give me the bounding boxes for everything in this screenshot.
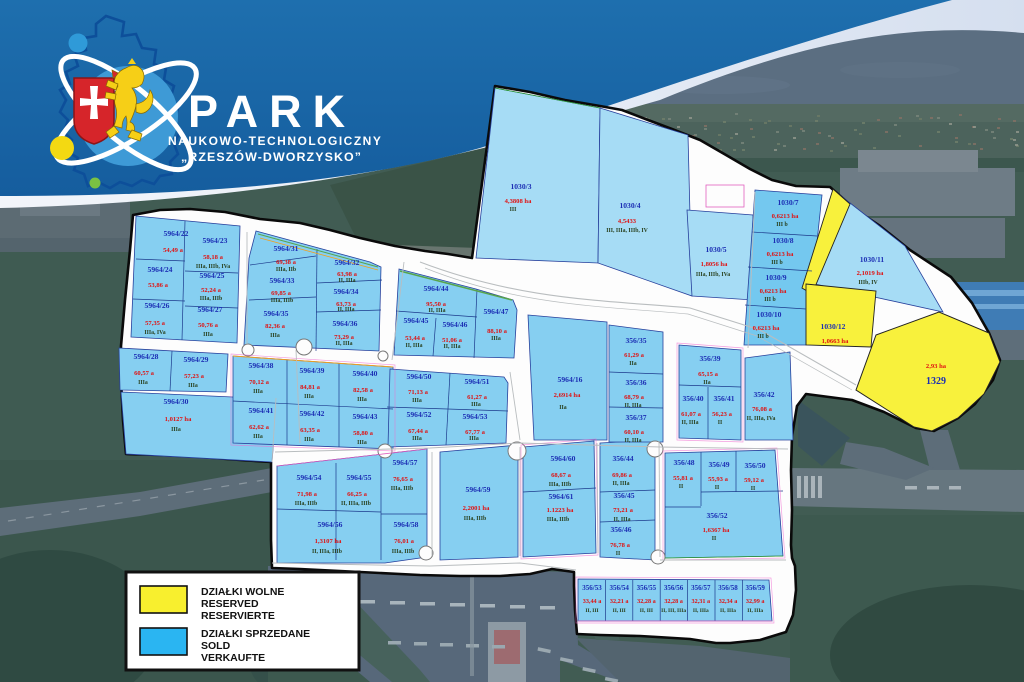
svg-text:5964/53: 5964/53 bbox=[463, 412, 488, 421]
svg-text:67,44 a: 67,44 a bbox=[408, 428, 428, 435]
svg-text:5964/46: 5964/46 bbox=[443, 320, 468, 329]
svg-text:5964/56: 5964/56 bbox=[318, 520, 343, 529]
svg-text:II: II bbox=[712, 536, 717, 542]
svg-text:95,50 a: 95,50 a bbox=[426, 301, 446, 308]
svg-text:II, IIIa: II, IIIa bbox=[338, 278, 355, 284]
svg-text:70,12 a: 70,12 a bbox=[249, 379, 269, 386]
svg-text:5964/22: 5964/22 bbox=[164, 229, 189, 238]
svg-text:5964/38: 5964/38 bbox=[249, 361, 274, 370]
svg-text:IIIa, IIIb: IIIa, IIIb bbox=[391, 486, 414, 492]
svg-text:356/48: 356/48 bbox=[673, 458, 694, 467]
svg-text:II, IIIa: II, IIIa bbox=[747, 608, 763, 614]
svg-text:32,28 a: 32,28 a bbox=[664, 598, 683, 605]
svg-text:1030/8: 1030/8 bbox=[772, 236, 793, 245]
svg-text:69,38 a: 69,38 a bbox=[276, 259, 296, 266]
svg-text:5964/61: 5964/61 bbox=[549, 492, 574, 501]
svg-text:IIIa: IIIa bbox=[471, 402, 481, 408]
svg-text:5964/41: 5964/41 bbox=[249, 406, 274, 415]
svg-text:IIIa: IIIa bbox=[491, 336, 501, 342]
svg-text:2,6914 ha: 2,6914 ha bbox=[554, 392, 581, 399]
svg-text:5964/52: 5964/52 bbox=[407, 410, 432, 419]
svg-text:1030/12: 1030/12 bbox=[821, 322, 846, 331]
svg-text:73,21 a: 73,21 a bbox=[613, 507, 633, 514]
svg-text:II: II bbox=[715, 485, 720, 491]
svg-text:5964/23: 5964/23 bbox=[203, 236, 228, 245]
svg-text:IIIa, IIIb, IVa: IIIa, IIIb, IVa bbox=[196, 264, 230, 270]
svg-text:1030/5: 1030/5 bbox=[705, 245, 726, 254]
svg-text:DZIAŁKI SPRZEDANE: DZIAŁKI SPRZEDANE bbox=[201, 628, 310, 640]
svg-text:IIIa, IIIb: IIIa, IIIb bbox=[549, 482, 572, 488]
svg-text:IIIa, IIIb: IIIa, IIIb bbox=[547, 517, 570, 523]
svg-text:IIIa, IIIb: IIIa, IIIb bbox=[295, 501, 318, 507]
svg-text:III, IIIa, IIIb, IV: III, IIIa, IIIb, IV bbox=[606, 228, 648, 234]
svg-text:61,07 a: 61,07 a bbox=[681, 411, 701, 418]
svg-text:71,13 a: 71,13 a bbox=[408, 389, 428, 396]
svg-text:IIa: IIa bbox=[629, 361, 637, 367]
svg-text:5964/54: 5964/54 bbox=[297, 473, 322, 482]
svg-text:356/37: 356/37 bbox=[625, 413, 646, 422]
svg-text:5964/47: 5964/47 bbox=[484, 307, 509, 316]
svg-text:III b: III b bbox=[757, 334, 768, 340]
svg-text:IIIa: IIIa bbox=[138, 380, 148, 386]
svg-text:II, IIIa: II, IIIa bbox=[335, 341, 352, 347]
svg-text:IIIa: IIIa bbox=[171, 427, 181, 433]
svg-text:„RZESZÓW-DWORZYSKO”: „RZESZÓW-DWORZYSKO” bbox=[181, 149, 362, 164]
svg-text:II: II bbox=[718, 420, 723, 426]
svg-text:58,80 a: 58,80 a bbox=[353, 430, 373, 437]
svg-text:356/59: 356/59 bbox=[745, 584, 765, 592]
svg-text:5964/55: 5964/55 bbox=[347, 473, 372, 482]
svg-text:5964/27: 5964/27 bbox=[198, 305, 223, 314]
svg-text:IIIa: IIIa bbox=[357, 440, 367, 446]
svg-text:0,6213 ha: 0,6213 ha bbox=[772, 213, 799, 220]
svg-text:II, IIIa: II, IIIa bbox=[613, 517, 630, 523]
svg-text:1,8056 ha: 1,8056 ha bbox=[701, 261, 728, 268]
svg-text:54,49 a: 54,49 a bbox=[163, 247, 183, 254]
svg-text:356/35: 356/35 bbox=[625, 336, 646, 345]
svg-text:PARK: PARK bbox=[188, 86, 356, 137]
svg-text:61,29 a: 61,29 a bbox=[624, 352, 644, 359]
svg-text:53,86 a: 53,86 a bbox=[148, 282, 168, 289]
svg-text:IIIa, IIIb, IVa: IIIa, IIIb, IVa bbox=[696, 272, 730, 278]
svg-text:II, IIIa: II, IIIa bbox=[693, 608, 709, 614]
svg-text:IIIa: IIIa bbox=[412, 398, 422, 404]
svg-text:IIIa: IIIa bbox=[412, 436, 422, 442]
svg-text:4,5433: 4,5433 bbox=[618, 218, 637, 225]
svg-text:5964/60: 5964/60 bbox=[551, 454, 576, 463]
svg-text:2,93 ha: 2,93 ha bbox=[926, 363, 947, 370]
svg-text:5964/35: 5964/35 bbox=[264, 309, 289, 318]
svg-text:IIIa, IVa: IIIa, IVa bbox=[144, 330, 165, 336]
svg-text:IIIa: IIIa bbox=[304, 394, 314, 400]
svg-text:DZIAŁKI WOLNE: DZIAŁKI WOLNE bbox=[201, 586, 284, 598]
svg-text:II: II bbox=[616, 551, 621, 557]
svg-text:60,57 a: 60,57 a bbox=[134, 370, 154, 377]
svg-text:1.1223 ha: 1.1223 ha bbox=[547, 507, 574, 514]
svg-text:84,81 a: 84,81 a bbox=[300, 384, 320, 391]
svg-text:5964/42: 5964/42 bbox=[300, 409, 325, 418]
svg-text:5964/57: 5964/57 bbox=[393, 458, 418, 467]
svg-text:76,01 a: 76,01 a bbox=[394, 538, 414, 545]
svg-text:IIIa, IIb: IIIa, IIb bbox=[276, 267, 296, 273]
svg-text:1030/3: 1030/3 bbox=[510, 182, 531, 191]
svg-text:II: II bbox=[751, 486, 756, 492]
svg-text:NAUKOWO-TECHNOLOGICZNY: NAUKOWO-TECHNOLOGICZNY bbox=[168, 134, 382, 148]
svg-text:IIIb, IV: IIIb, IV bbox=[858, 280, 878, 286]
svg-text:5964/45: 5964/45 bbox=[404, 316, 429, 325]
svg-text:1030/10: 1030/10 bbox=[757, 310, 782, 319]
svg-text:II, IIIa: II, IIIa bbox=[624, 403, 641, 409]
svg-text:61,27 a: 61,27 a bbox=[467, 394, 487, 401]
svg-text:IIIa: IIIa bbox=[469, 436, 479, 442]
svg-text:5964/16: 5964/16 bbox=[558, 375, 583, 384]
svg-text:II, IIIa: II, IIIa bbox=[337, 307, 354, 313]
svg-text:1030/9: 1030/9 bbox=[765, 273, 786, 282]
svg-text:5964/58: 5964/58 bbox=[394, 520, 419, 529]
svg-text:5964/59: 5964/59 bbox=[466, 485, 491, 494]
svg-text:50,76 a: 50,76 a bbox=[198, 322, 218, 329]
svg-text:1,0663 ha: 1,0663 ha bbox=[822, 338, 849, 345]
svg-text:57,23 a: 57,23 a bbox=[184, 373, 204, 380]
svg-text:356/36: 356/36 bbox=[625, 378, 646, 387]
svg-text:RESERVIERTE: RESERVIERTE bbox=[201, 610, 275, 622]
svg-text:0,6213 ha: 0,6213 ha bbox=[760, 288, 787, 295]
svg-text:82,36 a: 82,36 a bbox=[265, 323, 285, 330]
svg-text:356/46: 356/46 bbox=[610, 525, 631, 534]
svg-text:1030/7: 1030/7 bbox=[777, 198, 798, 207]
svg-text:5964/29: 5964/29 bbox=[184, 355, 209, 364]
svg-text:69,85 a: 69,85 a bbox=[271, 290, 291, 297]
svg-text:68,67 a: 68,67 a bbox=[551, 472, 571, 479]
svg-text:2,2001 ha: 2,2001 ha bbox=[463, 505, 490, 512]
svg-text:32,21 a: 32,21 a bbox=[610, 598, 629, 605]
svg-text:II, IIIa: II, IIIa bbox=[428, 308, 445, 314]
svg-text:356/44: 356/44 bbox=[612, 454, 633, 463]
svg-text:II, IIIa, IIIb: II, IIIa, IIIb bbox=[312, 549, 342, 555]
svg-text:5964/34: 5964/34 bbox=[334, 287, 359, 296]
svg-text:356/49: 356/49 bbox=[708, 460, 729, 469]
svg-text:5964/26: 5964/26 bbox=[145, 301, 170, 310]
svg-text:5964/40: 5964/40 bbox=[353, 369, 378, 378]
svg-text:1,0127 ha: 1,0127 ha bbox=[165, 416, 192, 423]
svg-text:III b: III b bbox=[764, 297, 775, 303]
svg-text:32,34 a: 32,34 a bbox=[719, 598, 738, 605]
svg-text:5964/25: 5964/25 bbox=[200, 271, 225, 280]
svg-text:356/45: 356/45 bbox=[613, 491, 634, 500]
svg-text:60,10 a: 60,10 a bbox=[624, 429, 644, 436]
svg-text:5964/24: 5964/24 bbox=[148, 265, 173, 274]
svg-text:II, IIIa: II, IIIa bbox=[681, 420, 698, 426]
svg-text:356/41: 356/41 bbox=[713, 394, 734, 403]
svg-text:71,98 a: 71,98 a bbox=[297, 491, 317, 498]
svg-text:2,1019 ha: 2,1019 ha bbox=[857, 270, 884, 277]
svg-text:IIIa: IIIa bbox=[304, 437, 314, 443]
svg-text:4,3808 ha: 4,3808 ha bbox=[505, 198, 532, 205]
svg-text:SOLD: SOLD bbox=[201, 640, 231, 652]
svg-text:69,86 a: 69,86 a bbox=[612, 472, 632, 479]
svg-text:1,3107 ha: 1,3107 ha bbox=[315, 538, 342, 545]
svg-text:IIIa, IIIb: IIIa, IIIb bbox=[200, 296, 223, 302]
svg-text:RESERVED: RESERVED bbox=[201, 598, 259, 610]
svg-text:52,24 a: 52,24 a bbox=[201, 287, 221, 294]
svg-text:58,18 a: 58,18 a bbox=[203, 254, 223, 261]
svg-text:73,29 a: 73,29 a bbox=[334, 334, 354, 341]
svg-text:5964/32: 5964/32 bbox=[335, 258, 360, 267]
svg-text:63,35 a: 63,35 a bbox=[300, 427, 320, 434]
svg-text:II, IIIa, IVa: II, IIIa, IVa bbox=[747, 416, 776, 422]
svg-text:II, IIIa, IIIb: II, IIIa, IIIb bbox=[341, 501, 371, 507]
svg-text:32,28 a: 32,28 a bbox=[637, 598, 656, 605]
svg-text:67,77 a: 67,77 a bbox=[465, 429, 485, 436]
svg-text:356/56: 356/56 bbox=[664, 584, 684, 592]
svg-text:IIIa, IIIb: IIIa, IIIb bbox=[271, 298, 294, 304]
svg-text:53,44 a: 53,44 a bbox=[405, 335, 425, 342]
svg-text:356/39: 356/39 bbox=[699, 354, 720, 363]
svg-text:356/58: 356/58 bbox=[718, 584, 738, 592]
svg-text:IIIa: IIIa bbox=[357, 397, 367, 403]
svg-text:55,93 a: 55,93 a bbox=[708, 476, 728, 483]
svg-text:5964/31: 5964/31 bbox=[274, 244, 299, 253]
svg-text:356/54: 356/54 bbox=[609, 584, 629, 592]
svg-text:33,44 a: 33,44 a bbox=[583, 598, 602, 605]
svg-text:0,6213 ha: 0,6213 ha bbox=[767, 251, 794, 258]
svg-text:356/55: 356/55 bbox=[637, 584, 657, 592]
svg-text:1,6367 ha: 1,6367 ha bbox=[703, 527, 730, 534]
svg-text:5964/50: 5964/50 bbox=[407, 372, 432, 381]
svg-text:5964/44: 5964/44 bbox=[424, 284, 449, 293]
svg-text:IIIa: IIIa bbox=[270, 333, 280, 339]
svg-text:356/42: 356/42 bbox=[753, 390, 774, 399]
svg-text:76,78 a: 76,78 a bbox=[610, 542, 630, 549]
svg-text:5964/39: 5964/39 bbox=[300, 366, 325, 375]
svg-text:VERKAUFTE: VERKAUFTE bbox=[201, 652, 265, 664]
svg-text:356/52: 356/52 bbox=[706, 511, 727, 520]
svg-text:III b: III b bbox=[771, 260, 782, 266]
svg-text:II, III: II, III bbox=[613, 608, 626, 614]
svg-text:IIa: IIa bbox=[703, 380, 711, 386]
svg-text:68,79 a: 68,79 a bbox=[624, 394, 644, 401]
svg-text:IIIa: IIIa bbox=[203, 332, 213, 338]
svg-text:63,98 a: 63,98 a bbox=[337, 271, 357, 278]
svg-text:II, IIIa: II, IIIa bbox=[405, 343, 422, 349]
svg-text:5964/43: 5964/43 bbox=[353, 412, 378, 421]
svg-text:5964/36: 5964/36 bbox=[333, 319, 358, 328]
svg-text:356/40: 356/40 bbox=[682, 394, 703, 403]
svg-text:5964/28: 5964/28 bbox=[134, 352, 159, 361]
svg-text:356/50: 356/50 bbox=[744, 461, 765, 470]
svg-text:76,65 a: 76,65 a bbox=[393, 476, 413, 483]
svg-text:5964/30: 5964/30 bbox=[164, 397, 189, 406]
svg-text:0,6213 ha: 0,6213 ha bbox=[753, 325, 780, 332]
svg-text:II, IIIa: II, IIIa bbox=[624, 438, 641, 444]
svg-text:356/53: 356/53 bbox=[582, 584, 602, 592]
svg-text:32,31 a: 32,31 a bbox=[692, 598, 711, 605]
svg-text:32,99 a: 32,99 a bbox=[746, 598, 765, 605]
svg-text:88,10 a: 88,10 a bbox=[487, 328, 507, 335]
svg-text:62,62 a: 62,62 a bbox=[249, 424, 269, 431]
svg-text:66,25 a: 66,25 a bbox=[347, 491, 367, 498]
svg-text:1030/4: 1030/4 bbox=[619, 201, 640, 210]
svg-text:57,35 a: 57,35 a bbox=[145, 320, 165, 327]
svg-text:IIIa: IIIa bbox=[253, 389, 263, 395]
svg-text:IIIa: IIIa bbox=[253, 434, 263, 440]
svg-text:II, IIIa: II, IIIa bbox=[443, 344, 460, 350]
svg-text:IIa: IIa bbox=[559, 405, 567, 411]
svg-text:55,81 a: 55,81 a bbox=[673, 475, 693, 482]
svg-text:82,58 a: 82,58 a bbox=[353, 387, 373, 394]
svg-text:IIIa, IIIb: IIIa, IIIb bbox=[464, 516, 487, 522]
svg-text:II, IIIa: II, IIIa bbox=[612, 481, 629, 487]
svg-text:51,06 a: 51,06 a bbox=[442, 337, 462, 344]
svg-text:II: II bbox=[679, 484, 684, 490]
svg-text:59,12 a: 59,12 a bbox=[744, 477, 764, 484]
svg-text:1030/11: 1030/11 bbox=[860, 255, 885, 264]
svg-text:IIIa: IIIa bbox=[188, 383, 198, 389]
svg-text:II, III: II, III bbox=[585, 608, 598, 614]
svg-text:II, IIIa: II, IIIa bbox=[720, 608, 736, 614]
svg-text:5964/33: 5964/33 bbox=[270, 276, 295, 285]
svg-text:65,15 a: 65,15 a bbox=[698, 371, 718, 378]
svg-text:IIIa, IIIb: IIIa, IIIb bbox=[392, 549, 415, 555]
svg-text:5964/51: 5964/51 bbox=[465, 377, 490, 386]
svg-text:III: III bbox=[510, 207, 518, 213]
svg-text:356/57: 356/57 bbox=[691, 584, 711, 592]
svg-text:III b: III b bbox=[776, 222, 787, 228]
svg-text:76,08 a: 76,08 a bbox=[752, 406, 772, 413]
svg-text:56,23 a: 56,23 a bbox=[712, 411, 732, 418]
svg-text:II, III, IIIa: II, III, IIIa bbox=[661, 608, 686, 614]
svg-text:II, III: II, III bbox=[640, 608, 653, 614]
svg-text:1329: 1329 bbox=[926, 376, 946, 387]
